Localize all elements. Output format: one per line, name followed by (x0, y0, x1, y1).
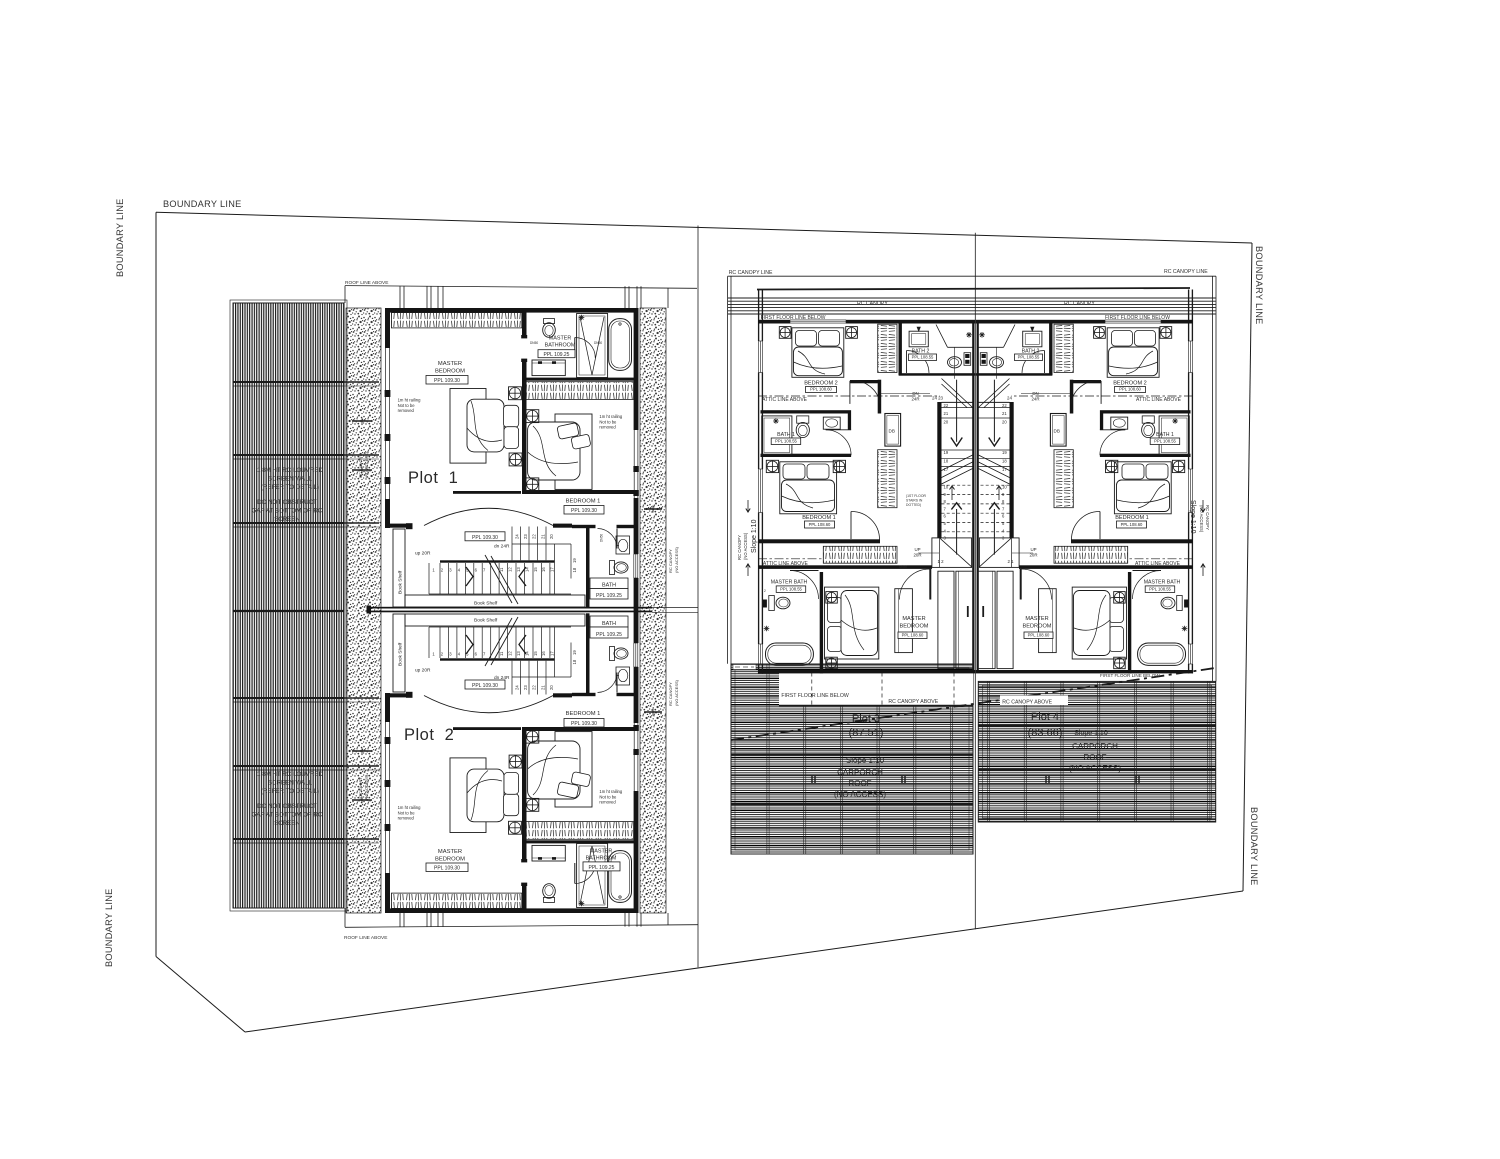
svg-text:removed: removed (398, 408, 415, 413)
svg-text:20: 20 (944, 419, 949, 424)
svg-text:(NO ACCESS): (NO ACCESS) (743, 532, 748, 560)
svg-text:15: 15 (533, 651, 538, 656)
svg-text:1m ht railing: 1m ht railing (599, 414, 622, 419)
svg-text:PPL 108.55: PPL 108.55 (1149, 587, 1171, 592)
svg-text:BATHROOM: BATHROOM (586, 856, 617, 862)
svg-text:16: 16 (541, 651, 546, 656)
svg-text:21: 21 (540, 534, 545, 539)
svg-text:24 23: 24 23 (932, 396, 944, 401)
svg-text:PPL 109.25: PPL 109.25 (596, 632, 622, 638)
svg-text:22: 22 (532, 685, 537, 690)
svg-text:BEDROOM: BEDROOM (435, 369, 465, 375)
svg-text:RC CANOPY LINE: RC CANOPY LINE (729, 270, 773, 276)
svg-text:11: 11 (499, 651, 504, 656)
svg-text:PPL 108.55: PPL 108.55 (775, 439, 797, 444)
svg-text:SCREEN WALL: SCREEN WALL (268, 780, 313, 787)
svg-text:removed: removed (398, 816, 415, 821)
svg-text:21: 21 (1002, 411, 1007, 416)
svg-text:RC CANOPY: RC CANOPY (737, 535, 742, 560)
svg-text:PPL 108.60: PPL 108.60 (1119, 387, 1141, 392)
svg-text:(83.66): (83.66) (1028, 727, 1063, 739)
svg-text:Not to be: Not to be (599, 794, 617, 799)
svg-text:11: 11 (499, 567, 504, 572)
svg-text:PPL 108.60: PPL 108.60 (1028, 633, 1050, 638)
svg-text:2: 2 (764, 589, 766, 593)
svg-text:(NO ACCESS): (NO ACCESS) (834, 790, 886, 799)
svg-text:BOUNDARY LINE: BOUNDARY LINE (1249, 807, 1259, 886)
svg-text:24: 24 (515, 534, 520, 539)
svg-text:Slope 1:10: Slope 1:10 (751, 519, 758, 553)
svg-text:18: 18 (944, 458, 949, 463)
svg-text:PPL 109.25: PPL 109.25 (544, 352, 570, 358)
svg-text:BEDROOM 1: BEDROOM 1 (566, 499, 601, 505)
svg-text:Not to be: Not to be (398, 810, 416, 815)
svg-text:UP: UP (1030, 547, 1036, 552)
svg-text:19: 19 (572, 558, 577, 563)
svg-text:ATTIC LINE ABOVE: ATTIC LINE ABOVE (763, 561, 809, 567)
svg-text:1 2: 1 2 (938, 559, 945, 564)
svg-text:22: 22 (944, 403, 949, 408)
svg-text:MASTER: MASTER (438, 361, 462, 367)
svg-text:ATTIC LINE ABOVE: ATTIC LINE ABOVE (1136, 397, 1182, 403)
svg-text:PPL 108.55: PPL 108.55 (780, 587, 802, 592)
svg-text:PPL 108.60: PPL 108.60 (809, 522, 831, 527)
svg-text:Plot 3: Plot 3 (852, 713, 880, 725)
svg-text:13: 13 (516, 651, 521, 656)
svg-text:PPL 108.60: PPL 108.60 (810, 387, 832, 392)
svg-text:FIRST FLOOR LINE BELOW: FIRST FLOOR LINE BELOW (761, 315, 826, 321)
svg-text:24R: 24R (911, 397, 919, 402)
svg-text:BEDROOM 1: BEDROOM 1 (802, 515, 836, 521)
svg-text:PPL 109.25: PPL 109.25 (589, 865, 615, 871)
svg-text:MASTER: MASTER (549, 336, 572, 342)
svg-text:RC CANOPY: RC CANOPY (358, 777, 363, 801)
svg-text:RC CANOPY: RC CANOPY (668, 549, 673, 573)
svg-text:2 1: 2 1 (1008, 559, 1015, 564)
svg-text:RC CANOPY ABOVE: RC CANOPY ABOVE (1002, 700, 1052, 706)
svg-text:BEDROOM: BEDROOM (900, 624, 929, 630)
svg-text:CARPORCH: CARPORCH (1072, 742, 1118, 751)
svg-text:MASTER: MASTER (902, 616, 925, 622)
svg-text:DN50: DN50 (899, 565, 907, 569)
svg-text:BEDROOM 1: BEDROOM 1 (566, 711, 601, 717)
svg-text:dn 24R: dn 24R (494, 675, 510, 681)
svg-text:18: 18 (1002, 458, 1007, 463)
svg-text:23: 23 (523, 685, 528, 690)
svg-text:RC CANOPY: RC CANOPY (857, 301, 888, 307)
svg-text:22: 22 (1002, 403, 1007, 408)
svg-text:BATHROOM: BATHROOM (545, 343, 576, 349)
svg-text:RC CANOPY ABOVE: RC CANOPY ABOVE (888, 699, 938, 705)
svg-text:BEDROOM: BEDROOM (435, 857, 465, 863)
svg-text:BOUNDARY LINE: BOUNDARY LINE (1254, 246, 1264, 325)
svg-text:22: 22 (532, 534, 537, 539)
svg-text:14: 14 (524, 567, 529, 572)
svg-text:PPL 109.30: PPL 109.30 (571, 721, 597, 727)
svg-text:ROOF: ROOF (848, 779, 871, 788)
svg-text:1m ht railing: 1m ht railing (599, 789, 622, 794)
svg-text:Plot 2: Plot 2 (404, 726, 454, 744)
svg-text:(NO ACCESS): (NO ACCESS) (1069, 764, 1121, 773)
svg-text:1.8M HT RC LOUVRED: 1.8M HT RC LOUVRED (257, 467, 323, 474)
svg-text:FIRST FLOOR LINE BELOW: FIRST FLOOR LINE BELOW (781, 693, 848, 699)
svg-text:Slope 1:10: Slope 1:10 (846, 756, 885, 765)
svg-text:10: 10 (1002, 485, 1007, 490)
svg-text:Not to be: Not to be (398, 403, 416, 408)
svg-text:DN50: DN50 (594, 341, 602, 345)
svg-text:STAIRS IN: STAIRS IN (906, 499, 923, 503)
svg-text:DOTTED): DOTTED) (906, 503, 921, 507)
svg-text:PPL 109.30: PPL 109.30 (571, 508, 597, 514)
svg-text:PPL 108.60: PPL 108.60 (902, 633, 924, 638)
svg-text:SCREEN: SCREEN (274, 516, 300, 523)
svg-text:Slope 1:10: Slope 1:10 (1074, 730, 1108, 737)
svg-text:UP: UP (914, 547, 920, 552)
svg-text:RC CANOPY: RC CANOPY (1205, 505, 1210, 530)
svg-text:1.8M HT RC LOUVRED: 1.8M HT RC LOUVRED (257, 771, 323, 778)
svg-text:BOUNDARY LINE: BOUNDARY LINE (115, 198, 125, 277)
svg-text:21: 21 (944, 411, 949, 416)
svg-text:(REFER TO DETAIL): (REFER TO DETAIL) (261, 484, 319, 491)
svg-text:BATH: BATH (602, 583, 616, 589)
svg-text:ROOF LINE ABOVE: ROOF LINE ABOVE (345, 280, 388, 286)
svg-text:Book Shelf: Book Shelf (474, 601, 498, 607)
svg-text:DN50: DN50 (530, 341, 538, 345)
svg-text:ATTIC LINE ABOVE: ATTIC LINE ABOVE (762, 397, 808, 403)
svg-text:16: 16 (541, 567, 546, 572)
svg-text:BATH 1: BATH 1 (1156, 432, 1174, 438)
svg-text:MASTER: MASTER (438, 849, 462, 855)
svg-text:CARPORCH: CARPORCH (837, 768, 883, 777)
svg-text:17: 17 (1002, 467, 1007, 472)
svg-text:PPL 109.30: PPL 109.30 (472, 535, 498, 541)
svg-text:GAP AT BOTTOM OF RC: GAP AT BOTTOM OF RC (252, 508, 323, 515)
svg-text:BEDROOM: BEDROOM (1023, 624, 1052, 630)
svg-text:21: 21 (540, 685, 545, 690)
svg-text:17: 17 (550, 567, 555, 572)
svg-text:BATH: BATH (602, 621, 616, 627)
svg-text:12: 12 (507, 651, 512, 656)
svg-text:up 20R: up 20R (415, 668, 431, 674)
svg-text:BATH 1: BATH 1 (777, 432, 795, 438)
svg-text:MASTER: MASTER (590, 849, 613, 855)
svg-text:12: 12 (507, 567, 512, 572)
svg-text:1m ht railing: 1m ht railing (398, 805, 421, 810)
svg-text:(1ST FLOOR: (1ST FLOOR (906, 494, 926, 498)
svg-text:10: 10 (944, 485, 949, 490)
svg-text:SCREEN: SCREEN (274, 820, 300, 827)
svg-text:Book Shelf: Book Shelf (398, 570, 404, 594)
svg-text:PPL 109.30: PPL 109.30 (434, 866, 460, 872)
svg-text:removed: removed (599, 800, 616, 805)
svg-text:19: 19 (1002, 450, 1007, 455)
svg-text:DB: DB (889, 429, 895, 434)
svg-text:MASTER BATH: MASTER BATH (771, 580, 808, 586)
svg-text:removed: removed (599, 425, 616, 430)
svg-text:PPL 109.30: PPL 109.30 (434, 378, 460, 384)
svg-text:BOUNDARY LINE: BOUNDARY LINE (104, 888, 114, 967)
svg-text:SCREEN WALL: SCREEN WALL (268, 476, 313, 483)
svg-text:(87.51): (87.51) (849, 727, 884, 739)
svg-text:(NO ACCESS): (NO ACCESS) (364, 451, 369, 478)
svg-text:20: 20 (549, 685, 554, 690)
svg-text:DN50: DN50 (600, 534, 604, 542)
svg-text:17: 17 (944, 467, 949, 472)
svg-text:24: 24 (515, 685, 520, 690)
svg-text:23: 23 (523, 534, 528, 539)
svg-text:RC CANOPY: RC CANOPY (358, 454, 363, 478)
svg-text:ROOF: ROOF (1083, 753, 1106, 762)
svg-text:PPL 109.30: PPL 109.30 (472, 683, 498, 689)
svg-text:FIRST FLOOR LINE BELOW: FIRST FLOOR LINE BELOW (1100, 673, 1160, 678)
svg-text:14: 14 (524, 651, 529, 656)
svg-text:PPL 108.55: PPL 108.55 (1018, 355, 1040, 360)
svg-text:PPL 108.55: PPL 108.55 (912, 355, 934, 360)
svg-text:19: 19 (944, 450, 949, 455)
svg-text:ATTIC LINE ABOVE: ATTIC LINE ABOVE (1135, 561, 1181, 567)
svg-text:(NO ACCESS): (NO ACCESS) (1199, 505, 1204, 533)
svg-text:PPL 108.60: PPL 108.60 (1121, 522, 1143, 527)
svg-text:19: 19 (572, 650, 577, 655)
svg-text:18: 18 (572, 567, 577, 572)
svg-text:dn 24R: dn 24R (494, 544, 510, 550)
svg-text:RC CANOPY: RC CANOPY (668, 682, 673, 706)
svg-text:RC CANOPY: RC CANOPY (1064, 301, 1095, 307)
svg-text:RC CANOPY LINE: RC CANOPY LINE (1164, 269, 1208, 275)
svg-text:BOUNDARY LINE: BOUNDARY LINE (163, 199, 242, 209)
svg-text:Plot 1: Plot 1 (408, 469, 458, 487)
svg-text:up 20R: up 20R (415, 551, 431, 557)
svg-text:24R: 24R (1031, 397, 1039, 402)
svg-text:Book Shelf: Book Shelf (398, 642, 404, 666)
svg-text:MASTER BATH: MASTER BATH (1144, 580, 1181, 586)
svg-text:BEDROOM 2: BEDROOM 2 (804, 381, 838, 387)
svg-text:PPL 108.55: PPL 108.55 (1154, 439, 1176, 444)
svg-text:MASTER: MASTER (1025, 616, 1048, 622)
svg-text:ROOF LINE ABOVE: ROOF LINE ABOVE (344, 935, 387, 941)
svg-text:DB: DB (1054, 429, 1060, 434)
svg-text:18: 18 (572, 659, 577, 664)
svg-text:20: 20 (1002, 419, 1007, 424)
svg-text:20: 20 (549, 534, 554, 539)
svg-text:15: 15 (533, 567, 538, 572)
svg-text:Plot 4: Plot 4 (1031, 711, 1059, 723)
svg-text:PPL 109.25: PPL 109.25 (596, 593, 622, 599)
svg-text:DO NOT OBSTRUCT: DO NOT OBSTRUCT (257, 803, 317, 810)
svg-text:(REFER TO DETAIL): (REFER TO DETAIL) (261, 788, 319, 795)
svg-text:17: 17 (550, 651, 555, 656)
svg-text:DO NOT OBSTRUCT: DO NOT OBSTRUCT (257, 499, 317, 506)
svg-text:Book Shelf: Book Shelf (474, 618, 498, 624)
svg-text:13: 13 (516, 567, 521, 572)
svg-text:(NO ACCESS): (NO ACCESS) (674, 546, 679, 573)
svg-text:Slope 1:10: Slope 1:10 (1189, 500, 1196, 534)
svg-text:24: 24 (1007, 396, 1012, 401)
svg-text:BEDROOM 1: BEDROOM 1 (1115, 515, 1149, 521)
svg-text:1m ht railing: 1m ht railing (398, 398, 421, 403)
svg-text:(NO ACCESS): (NO ACCESS) (674, 679, 679, 706)
svg-text:(NO ACCESS): (NO ACCESS) (364, 774, 369, 801)
svg-text:Not to be: Not to be (599, 419, 617, 424)
svg-text:FIRST FLOOR LINE BELOW: FIRST FLOOR LINE BELOW (1105, 315, 1170, 321)
svg-text:BEDROOM 2: BEDROOM 2 (1113, 381, 1147, 387)
svg-text:GAP AT BOTTOM OF RC: GAP AT BOTTOM OF RC (252, 812, 323, 819)
